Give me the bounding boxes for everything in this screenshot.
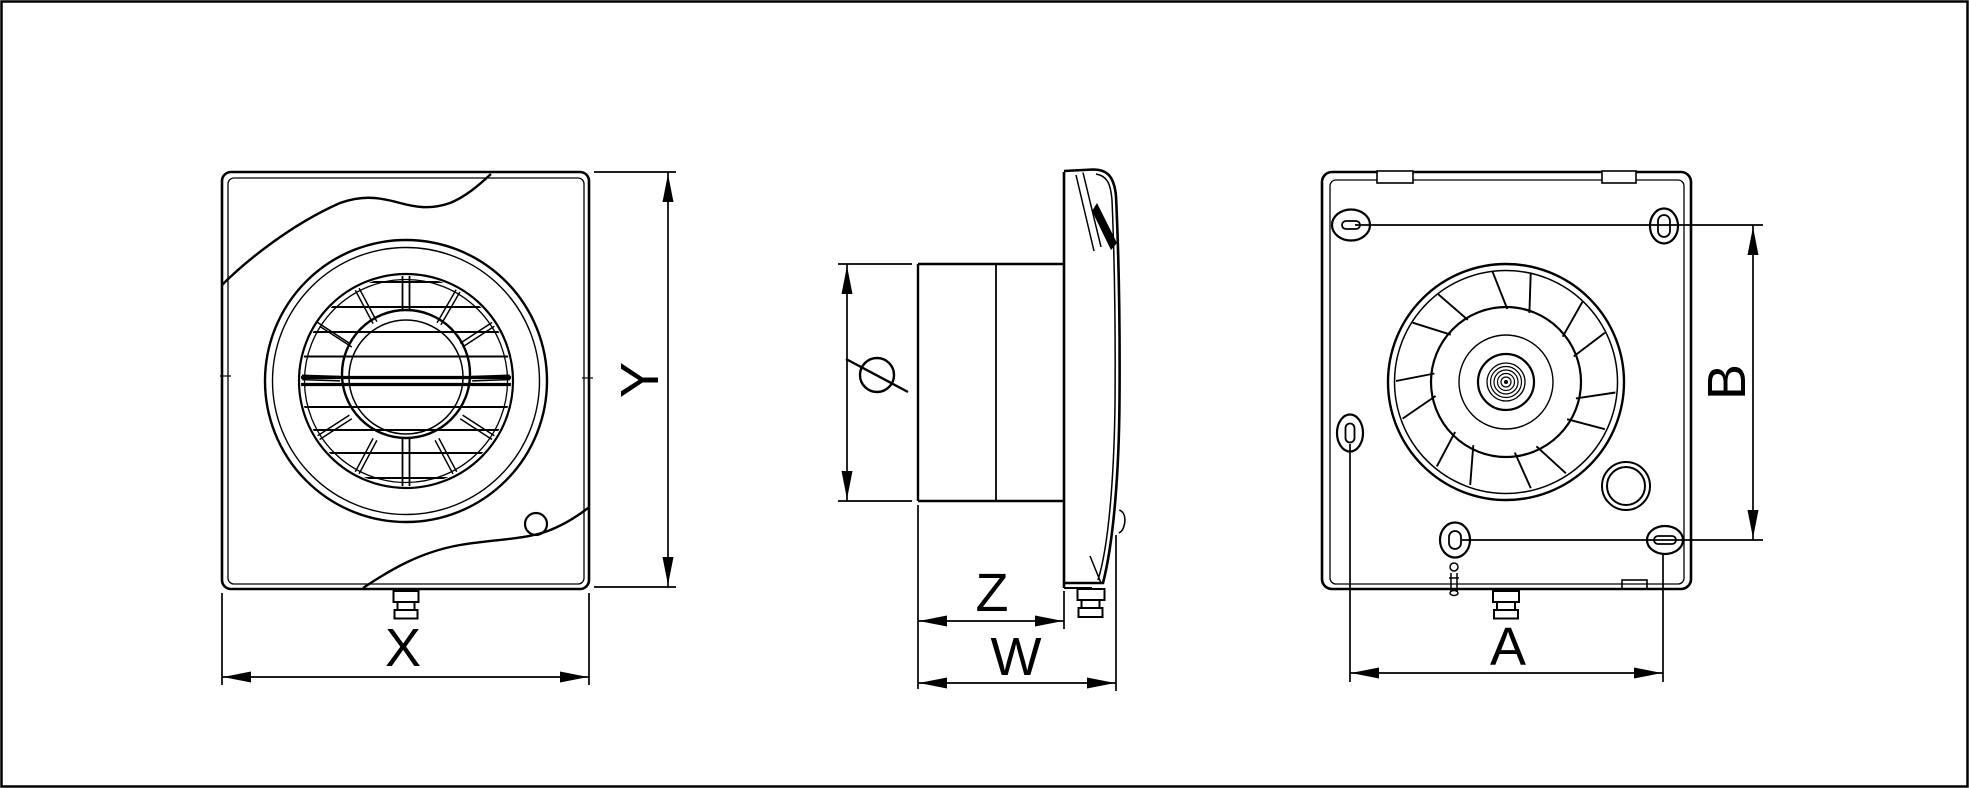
b-label: B bbox=[1697, 364, 1757, 400]
z-label: Z bbox=[976, 563, 1009, 623]
y-label: Y bbox=[610, 362, 670, 398]
top-notch-right bbox=[1602, 171, 1636, 183]
w-label: W bbox=[991, 627, 1042, 687]
top-notch-left bbox=[1377, 171, 1413, 183]
x-label: X bbox=[385, 618, 421, 678]
technical-drawing: X Y bbox=[0, 0, 1969, 788]
technical-drawing-canvas: X Y bbox=[0, 0, 1969, 788]
page-border bbox=[2, 2, 1968, 787]
a-label: A bbox=[1490, 617, 1526, 677]
